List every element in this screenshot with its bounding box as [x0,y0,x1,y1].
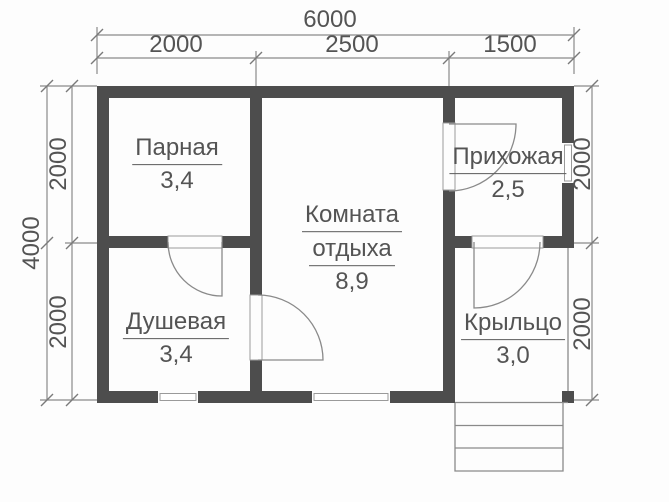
porch-steps-icon [455,403,563,471]
room-name-kryltso: Крыльцо [461,310,565,340]
room-area-parnaya: 3,4 [160,165,193,195]
room-name-komnata-line1: Комната [302,202,402,232]
dim-left-total: 4000 [18,216,46,269]
room-name-komnata-line2: отдыха [309,236,394,266]
dim-top-seg-3: 1500 [483,31,536,59]
dimension-lines-left [40,86,97,400]
room-name-parnaya: Парная [132,135,222,165]
dimension-lines-right [574,86,599,400]
bottom-wall [97,391,455,403]
left-wall [97,86,109,403]
dim-right-seg-1: 2000 [569,137,597,190]
room-label-kryltso: Крыльцо 3,0 [461,310,565,370]
door-swing-steam-icon [168,242,222,296]
room-area-prihozhaya: 2,5 [491,174,524,204]
dim-right-seg-2: 2000 [569,297,597,350]
room-area-kryltso: 3,0 [496,340,529,370]
room-name-prihozhaya: Прихожая [449,144,566,174]
floor-plan: 6000 2000 2500 1500 4000 2000 2000 2000 … [0,0,669,502]
porch-corner-post [562,391,574,403]
dim-left-seg-1: 2000 [45,137,73,190]
door-swing-rest-icon [258,295,323,360]
room-label-parnaya: Парная 3,4 [132,135,222,195]
door-opening-porch [472,236,543,248]
window-rest-icon [314,394,388,401]
door-swing-porch-icon [474,242,540,308]
room-label-komnata-otdyha: Комната отдыха 8,9 [302,202,402,296]
dim-top-seg-2: 2500 [325,31,378,59]
room-label-prihozhaya: Прихожая 2,5 [449,144,566,204]
dim-left-seg-2: 2000 [45,295,73,348]
room-area-komnata: 8,9 [335,266,368,296]
room-name-dushevaya: Душевая [123,309,229,339]
dim-top-total: 6000 [303,6,356,34]
door-opening-rest [250,295,262,360]
dim-top-seg-1: 2000 [149,31,202,59]
window-shower-icon [160,394,196,401]
room-label-dushevaya: Душевая 3,4 [123,309,229,369]
top-wall [97,86,574,98]
room-area-dushevaya: 3,4 [159,339,192,369]
door-opening-steam [168,236,222,248]
